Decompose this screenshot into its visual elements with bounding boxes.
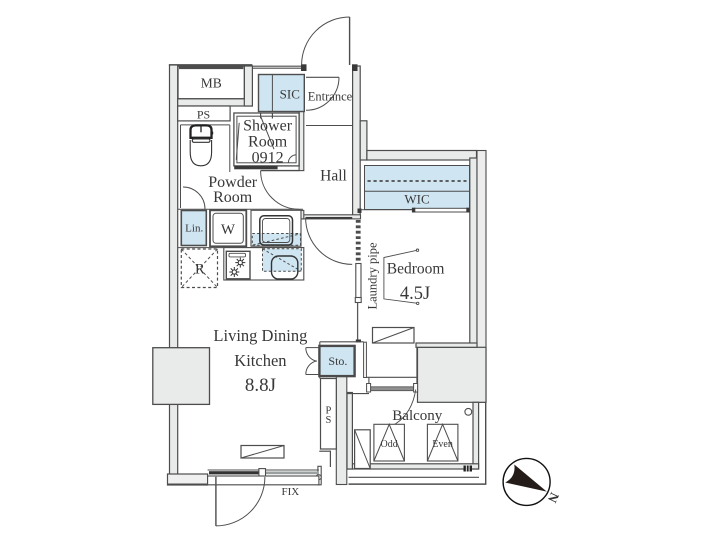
svg-text:Shower: Shower: [243, 117, 293, 134]
svg-text:SIC: SIC: [280, 86, 300, 101]
svg-text:W: W: [221, 222, 236, 238]
svg-text:Kitchen: Kitchen: [234, 351, 286, 370]
svg-text:MB: MB: [201, 76, 222, 91]
svg-text:Balcony: Balcony: [392, 408, 442, 424]
svg-text:Room: Room: [213, 189, 253, 206]
svg-text:Even: Even: [432, 439, 453, 450]
svg-text:PS: PS: [197, 108, 210, 122]
svg-text:0912: 0912: [252, 149, 284, 166]
svg-text:4.5J: 4.5J: [400, 284, 430, 304]
svg-text:Odd: Odd: [380, 439, 397, 450]
svg-text:WIC: WIC: [404, 192, 429, 207]
svg-text:8.8J: 8.8J: [245, 375, 276, 396]
svg-text:Entrance: Entrance: [308, 90, 353, 104]
svg-text:Laundry pipe: Laundry pipe: [366, 242, 380, 309]
svg-text:Room: Room: [248, 133, 288, 150]
svg-text:Hall: Hall: [320, 168, 347, 185]
svg-text:Lin.: Lin.: [185, 223, 203, 235]
svg-text:Sto.: Sto.: [328, 354, 347, 368]
svg-text:Bedroom: Bedroom: [387, 261, 445, 278]
svg-text:S: S: [325, 415, 331, 426]
svg-text:R: R: [195, 261, 205, 277]
svg-text:FIX: FIX: [282, 486, 300, 498]
svg-text:Living Dining: Living Dining: [213, 326, 307, 345]
